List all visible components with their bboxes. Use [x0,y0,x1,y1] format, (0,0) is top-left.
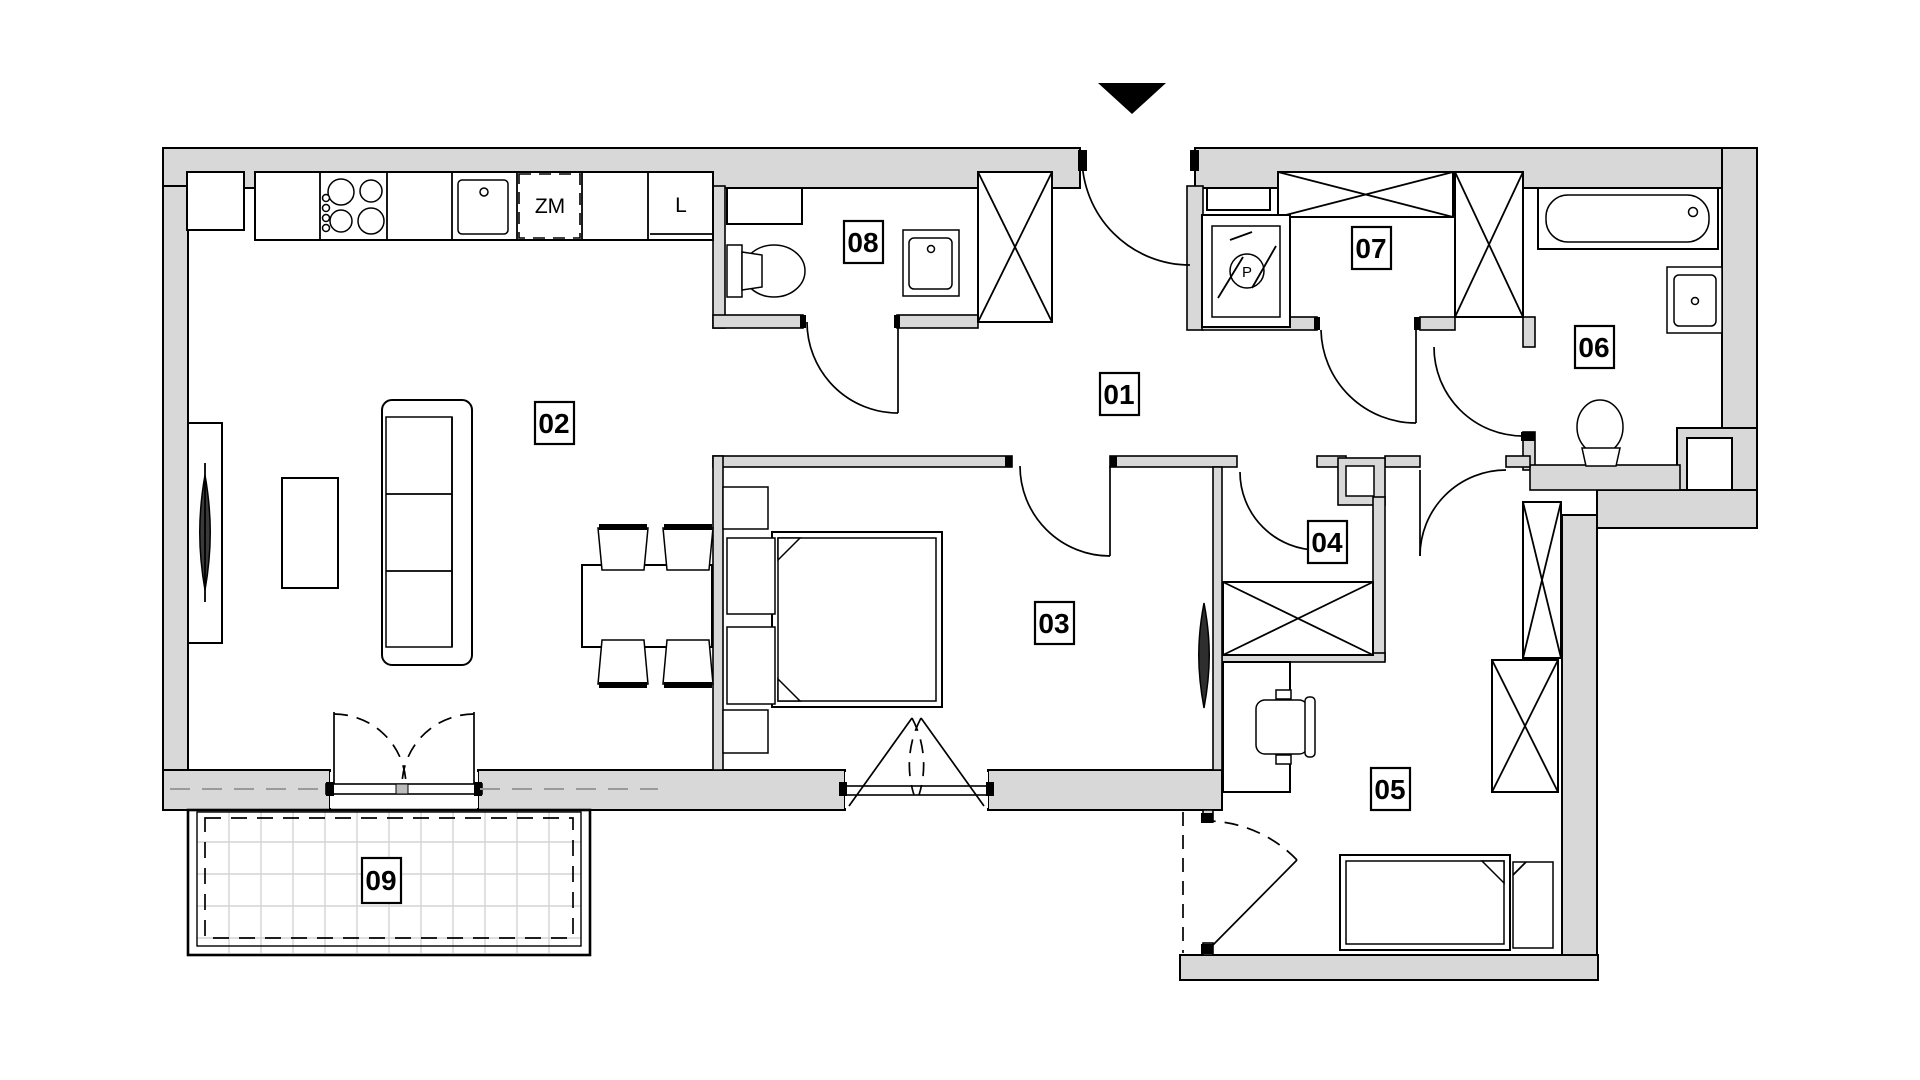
floor-plan: ZM L P [0,0,1920,1080]
tv-03-icon [1199,603,1210,708]
room-label-02: 02 [535,402,574,444]
corner-niche [1687,438,1732,490]
bed-03-icon [723,487,942,753]
room-label-09: 09 [362,858,401,903]
dishwasher: ZM [519,174,580,238]
door-corridor-05 [1420,470,1506,556]
toilet-08-icon [727,245,805,297]
door-04 [1240,472,1318,550]
room-label-02-text: 02 [538,408,569,439]
room-label-06: 06 [1575,326,1614,368]
dining-table [582,527,713,685]
room-label-05: 05 [1371,768,1410,810]
room-label-05-text: 05 [1374,774,1405,805]
washing-machine-icon: P [1202,215,1290,327]
wardrobe-05 [1492,660,1558,792]
shaft-08 [978,172,1052,322]
room-label-04-text: 04 [1311,527,1343,558]
room-label-09-text: 09 [365,865,396,896]
room-label-03-text: 03 [1038,608,1069,639]
kitchen-cabinet-left [187,172,244,230]
wc-shelf [727,188,802,224]
room-label-08-text: 08 [847,227,878,258]
room-label-06-text: 06 [1578,332,1609,363]
wardrobe-04 [1223,582,1373,655]
room-label-01-text: 01 [1103,379,1134,410]
bed-05-icon [1340,855,1553,950]
shaft-05 [1523,502,1561,658]
shaft-07 [1455,172,1523,317]
nightstand-bottom [723,710,768,753]
tv-cabinet [188,423,222,643]
room-label-04: 04 [1308,521,1347,563]
dishwasher-label: ZM [535,195,565,218]
entrance-door [1078,150,1199,265]
fridge: L [675,194,687,217]
door-07 [1314,317,1420,423]
door-03 [1005,456,1117,556]
desk-chair-icon [1256,690,1315,764]
coffee-table [282,478,338,588]
kitchen-sink-icon [458,180,508,234]
kitchen-counter [187,172,713,240]
laundry-niche [1207,188,1270,210]
room-label-07-text: 07 [1355,233,1386,264]
door-06 [1434,347,1535,441]
room-label-07: 07 [1352,227,1391,269]
bathtub-icon [1538,188,1718,249]
room-label-03: 03 [1035,602,1074,644]
entrance-arrow-icon [1098,83,1166,114]
fridge-label: L [675,194,687,217]
sink-08-icon [903,230,959,296]
door-05 [1201,813,1297,954]
toilet-06-icon [1577,400,1623,466]
sink-06-icon [1667,267,1722,333]
sofa-icon [382,400,472,665]
nightstand-top [723,487,768,529]
room-label-01: 01 [1100,373,1139,415]
balcony-door-03 [839,718,994,808]
room-label-08: 08 [844,221,883,263]
washing-machine-label: P [1242,264,1252,281]
wardrobe-07 [1278,172,1453,217]
door-08 [800,315,900,413]
